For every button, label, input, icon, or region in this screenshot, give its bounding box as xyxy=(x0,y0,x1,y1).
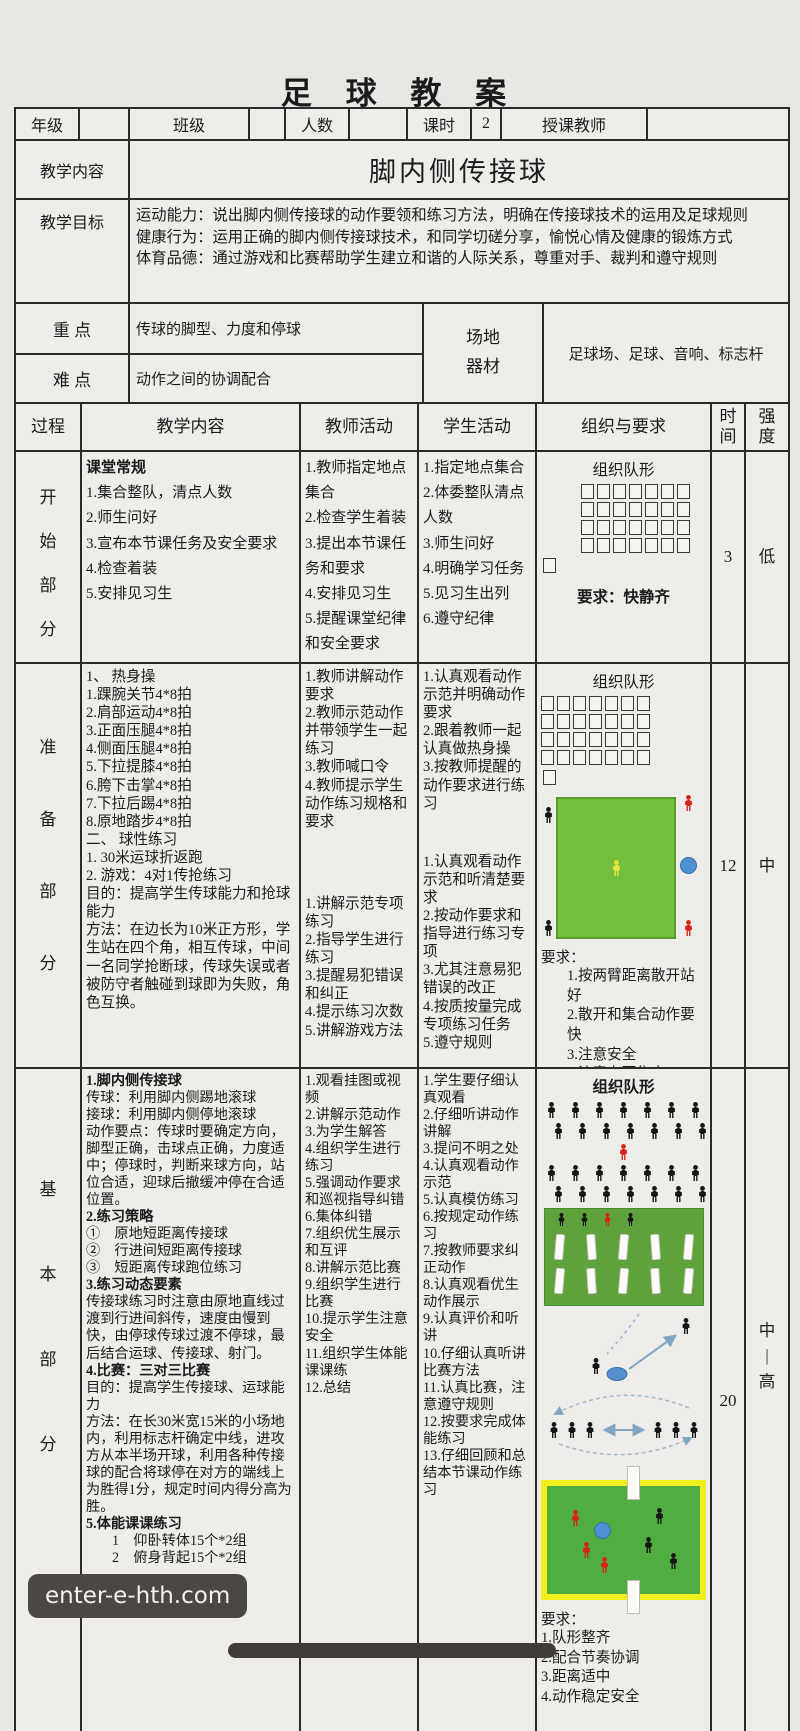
header-teacher: 教师活动 xyxy=(299,404,417,450)
goal-icon xyxy=(627,1466,640,1500)
teaching-content-row: 教学内容 脚内侧传接球 xyxy=(16,139,788,198)
start-intensity: 低 xyxy=(744,452,788,662)
start-time: 3 xyxy=(710,452,744,662)
start-requirement: 要求：快静齐 xyxy=(541,585,706,607)
basic-intensity: 中 | 高 xyxy=(744,1069,788,1731)
objectives-label: 教学目标 xyxy=(16,200,128,302)
basic-teaching-body-4: 目的：提高学生传接球、运球能力 方法：在长30米宽15米的小场地内，利用标志杆确… xyxy=(86,1380,296,1516)
basic-section-row: 基 本 部 分 1.脚内侧传接球传球：利用脚内侧踢地滚球 接球：利用脚内侧停地滚… xyxy=(16,1067,788,1731)
watermark: enter-e-hth.com xyxy=(28,1574,247,1618)
prep-teacher-block2: 1.讲解示范专项练习 2.指导学生进行练习 3.提醒易犯错误和纠正 4.提示练习… xyxy=(305,895,414,1040)
teaching-content-label: 教学内容 xyxy=(16,141,128,198)
marker-pole-icon xyxy=(682,1234,693,1261)
marker-pole-icon xyxy=(586,1268,597,1295)
objectives-text: 运动能力：说出脚内侧传接球的动作要领和练习方法，明确在传接球技术的运用及足球规则… xyxy=(128,200,788,302)
header-teaching: 教学内容 xyxy=(80,404,299,450)
teacher-label: 授课教师 xyxy=(500,109,646,139)
teaching-content-value: 脚内侧传接球 xyxy=(128,141,788,198)
red-player-icon xyxy=(570,1510,581,1526)
count-label: 人数 xyxy=(284,109,348,139)
marker-pole-icon xyxy=(553,1234,564,1261)
prep-student-block2: 1.认真观看动作示范和听清楚要求 2.按动作要求和指导进行练习专项 3.尤其注意… xyxy=(423,853,532,1052)
basic-requirement-label: 要求： xyxy=(541,1608,706,1629)
header-intensity: 强 度 xyxy=(744,404,788,450)
marker-pole-icon xyxy=(682,1268,693,1295)
practice-field-green xyxy=(556,797,676,939)
grade-label: 年级 xyxy=(16,109,78,139)
header-student: 学生活动 xyxy=(417,404,535,450)
kd-value-column: 传球的脚型、力度和停球 动作之间的协调配合 xyxy=(128,304,422,402)
keeper-icon xyxy=(611,860,622,876)
red-player-icon xyxy=(599,1557,610,1573)
marker-pole-icon xyxy=(586,1234,597,1261)
match-field-diagram xyxy=(541,1480,706,1600)
player-icon xyxy=(603,1213,612,1226)
practice-field-right-players xyxy=(676,793,699,938)
basic-teaching-head-2: 2.练习策略 xyxy=(86,1209,296,1226)
player-icon xyxy=(626,1213,635,1226)
class-value-cell xyxy=(248,109,284,139)
poles-field-diagram xyxy=(544,1208,704,1306)
class-label: 班级 xyxy=(128,109,248,139)
prep-requirement-label: 要求： xyxy=(541,946,706,967)
red-player-icon xyxy=(581,1542,592,1558)
venue-label: 场地 器材 xyxy=(422,304,542,402)
black-player-icon xyxy=(654,1508,665,1524)
marker-pole-icon xyxy=(650,1268,661,1295)
lesson-plan-page: 足 球 教 案 年级 班级 人数 课时 2 授课教师 教学内容 脚内侧传接球 教… xyxy=(0,0,800,1731)
period-label: 课时 xyxy=(406,109,470,139)
marker-pole-icon xyxy=(650,1234,661,1261)
ball-icon xyxy=(594,1522,611,1539)
teacher-value-cell xyxy=(646,109,788,139)
basic-time: 20 xyxy=(710,1069,744,1731)
basic-teaching-body-2: ① 原地短距离传接球 ② 行进间短距离传接球 ③ 短距离传球跑位练习 xyxy=(86,1226,296,1277)
prep-teacher-block1: 1.教师讲解动作要求 2.教师示范动作并带领学生一起练习 3.教师喊口令 4.教… xyxy=(305,668,414,831)
marker-poles-row xyxy=(551,1268,697,1294)
objectives-row: 教学目标 运动能力：说出脚内侧传接球的动作要领和练习方法，明确在传接球技术的运用… xyxy=(16,198,788,302)
basic-teaching-body-1: 传球：利用脚内侧踢地滚球 接球：利用脚内侧停地滚球 动作要点：传球时要确定方向，… xyxy=(86,1090,296,1209)
basic-section-name: 基 本 部 分 xyxy=(16,1069,80,1731)
basic-teaching-head-4: 4.比赛：三对三比赛 xyxy=(86,1363,296,1380)
header-organization: 组织与要求 xyxy=(535,404,710,450)
focus-label: 重 点 xyxy=(16,304,128,353)
difficulty-value: 动作之间的协调配合 xyxy=(130,353,422,402)
ball-icon xyxy=(680,857,697,874)
focus-value: 传球的脚型、力度和停球 xyxy=(130,304,422,353)
prep-teacher-cell: 1.教师讲解动作要求 2.教师示范动作并带领学生一起练习 3.教师喊口令 4.教… xyxy=(299,664,417,1067)
marker-pole-icon xyxy=(618,1234,629,1261)
count-value-cell xyxy=(348,109,406,139)
start-student-list: 1.指定地点集合 2.体委整队清点人数 3.师生问好 4.明确学习任务 5.见习… xyxy=(417,452,535,662)
basic-teaching-head-3: 3.练习动态要素 xyxy=(86,1277,296,1294)
player-icon xyxy=(683,920,694,936)
player-icon xyxy=(580,1213,589,1226)
basic-crowd-formation xyxy=(541,1102,706,1202)
difficulty-label: 难 点 xyxy=(16,353,128,402)
start-formation-diagram xyxy=(541,484,706,573)
start-formation-title: 组织队形 xyxy=(541,458,706,480)
movement-diagram xyxy=(541,1312,708,1470)
basic-organization-cell: 组织队形 xyxy=(535,1069,710,1731)
header-time: 时 间 xyxy=(710,404,744,450)
prep-organization-cell: 组织队形 要求： 1.按两 xyxy=(535,664,710,1067)
start-teaching-cell: 课堂常规 1.集合整队，清点人数 2.师生问好 3.宣布本节课任务及安全要求 4… xyxy=(80,452,299,662)
prep-formation-title: 组织队形 xyxy=(541,670,706,692)
grade-value-cell xyxy=(78,109,128,139)
kd-label-column: 重 点 难 点 xyxy=(16,304,128,402)
start-organization-cell: 组织队形 要求：快静齐 xyxy=(535,452,710,662)
prep-formation-diagram xyxy=(541,696,706,785)
info-row: 年级 班级 人数 课时 2 授课教师 xyxy=(16,109,788,139)
lesson-plan-table: 年级 班级 人数 课时 2 授课教师 教学内容 脚内侧传接球 教学目标 运动能力… xyxy=(14,107,790,1731)
basic-requirement-list: 1.队形整齐 2.配合节奏协调 3.距离适中 4.动作稳定安全 xyxy=(541,1629,706,1708)
prep-intensity: 中 xyxy=(744,664,788,1067)
practice-field-left-players xyxy=(541,793,556,938)
basic-teacher-list: 1.观看挂图或视频 2.讲解示范动作 3.为学生解答 4.组织学生进行练习 5.… xyxy=(299,1069,417,1731)
home-indicator-bar[interactable] xyxy=(228,1643,556,1658)
black-player-icon xyxy=(668,1553,679,1569)
prep-student-block1: 1.认真观看动作示范并明确动作要求 2.跟着教师一起认真做热身操 3.按教师提醒… xyxy=(423,668,532,813)
marker-pole-icon xyxy=(553,1268,564,1295)
period-value: 2 xyxy=(470,109,500,139)
prep-teaching-list: 1、 热身操 1.踝腕关节4*8拍 2.肩部运动4*8拍 3.正面压腿4*8拍 … xyxy=(80,664,299,1067)
black-player-icon xyxy=(643,1537,654,1553)
start-teaching-list: 1.集合整队，清点人数 2.师生问好 3.宣布本节课任务及安全要求 4.检查着装… xyxy=(86,481,296,607)
player-icon xyxy=(557,1213,566,1226)
key-difficulty-row: 重 点 难 点 传球的脚型、力度和停球 动作之间的协调配合 场地 器材 足球场、… xyxy=(16,302,788,402)
header-process: 过程 xyxy=(16,404,80,450)
prep-time: 12 xyxy=(710,664,744,1067)
marker-poles-row xyxy=(551,1234,697,1260)
marker-pole-icon xyxy=(618,1268,629,1295)
prep-student-cell: 1.认真观看动作示范并明确动作要求 2.跟着教师一起认真做热身操 3.按教师提醒… xyxy=(417,664,535,1067)
basic-teaching-head-1: 1.脚内侧传接球 xyxy=(86,1073,296,1090)
player-icon xyxy=(543,920,554,936)
start-section-row: 开 始 部 分 课堂常规 1.集合整队，清点人数 2.师生问好 3.宣布本节课任… xyxy=(16,450,788,662)
grid-header-row: 过程 教学内容 教师活动 学生活动 组织与要求 时 间 强 度 xyxy=(16,402,788,450)
basic-formation-title: 组织队形 xyxy=(541,1075,706,1097)
basic-student-list: 1.学生要仔细认真观看 2.仔细听讲动作讲解 3.提问不明之处 4.认真观看动作… xyxy=(417,1069,535,1731)
player-icon xyxy=(683,795,694,811)
goal-icon xyxy=(627,1580,640,1614)
practice-field-diagram xyxy=(541,793,706,938)
prep-requirement-list: 1.按两臂距离散开站好 2.散开和集合动作要快 3.注意安全 4.注意力要集中 xyxy=(541,967,706,1067)
basic-teaching-head-5: 5.体能课课练习 xyxy=(86,1516,296,1533)
start-teacher-list: 1.教师指定地点集合 2.检查学生着装 3.提出本节课任务和要求 4.安排见习生… xyxy=(299,452,417,662)
basic-teaching-body-3: 传接球练习时注意由原地直线过渡到行进间斜传，速度由慢到快，由停球传球过渡不停球，… xyxy=(86,1294,296,1362)
venue-value: 足球场、足球、音响、标志杆 xyxy=(542,304,788,402)
basic-teaching-cell: 1.脚内侧传接球传球：利用脚内侧踢地滚球 接球：利用脚内侧停地滚球 动作要点：传… xyxy=(80,1069,299,1731)
start-section-name: 开 始 部 分 xyxy=(16,452,80,662)
player-icon xyxy=(543,807,554,823)
poles-field-players xyxy=(551,1213,697,1226)
prep-section-row: 准 备 部 分 1、 热身操 1.踝腕关节4*8拍 2.肩部运动4*8拍 3.正… xyxy=(16,662,788,1067)
start-teaching-head: 课堂常规 xyxy=(86,456,296,481)
prep-section-name: 准 备 部 分 xyxy=(16,664,80,1067)
basic-teaching-body-5: 1 仰卧转体15个*2组 2 俯身背起15个*2组 xyxy=(86,1533,296,1567)
